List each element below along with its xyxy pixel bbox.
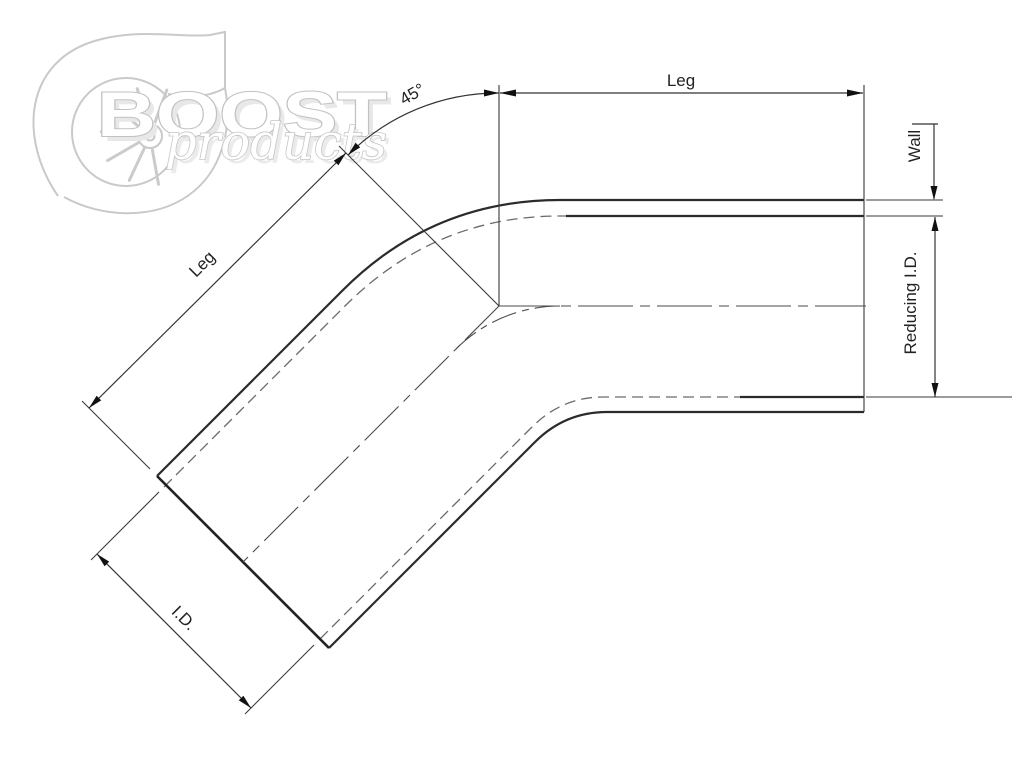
wall-dimension: Wall (866, 124, 943, 216)
id-extension-lower (245, 645, 314, 714)
angle-arc-top-arrowhead (484, 90, 499, 97)
angle-dimension-label: 45° (396, 80, 428, 109)
reducing-id-down-arrowhead (932, 383, 939, 397)
reducing-id-dimension: Reducing I.D. (866, 217, 1012, 397)
tube-inner-bottom-hidden-line (320, 397, 740, 639)
id-extension-upper (91, 492, 159, 560)
tube-outer-bottom-line (329, 412, 864, 648)
tube-inner-top-hidden-line (164, 216, 566, 487)
diagonal-leg-dimension: Leg (82, 146, 499, 469)
diagonal-leg-dimension-line (89, 153, 346, 408)
wall-dimension-label: Wall (905, 130, 924, 162)
top-leg-dimension-label: Leg (667, 71, 695, 90)
brand-secondary-text: products (165, 113, 387, 171)
diagonal-leg-extension-lower (82, 401, 150, 469)
id-dimension-line (97, 554, 251, 708)
top-leg-right-arrowhead (847, 90, 863, 97)
reducing-id-up-arrowhead (932, 217, 939, 231)
elbow-technical-drawing: BOOST BOOST products products Leg (0, 0, 1024, 768)
id-dimension: I.D. (91, 492, 314, 714)
diagonal-leg-extension-upper (339, 146, 499, 306)
tube-outer-top-line (157, 200, 864, 476)
drawing-canvas: BOOST BOOST products products Leg (0, 0, 1024, 768)
centerlines (243, 306, 866, 562)
top-leg-left-arrowhead (500, 90, 516, 97)
reducing-id-dimension-label: Reducing I.D. (901, 252, 920, 355)
bend-centerline-arc (456, 306, 560, 349)
boost-logo-watermark: BOOST BOOST products products (33, 32, 392, 213)
diagonal-leg-dimension-label: Leg (185, 247, 218, 280)
wall-down-arrowhead (931, 186, 938, 200)
top-leg-dimension: Leg (499, 71, 863, 306)
